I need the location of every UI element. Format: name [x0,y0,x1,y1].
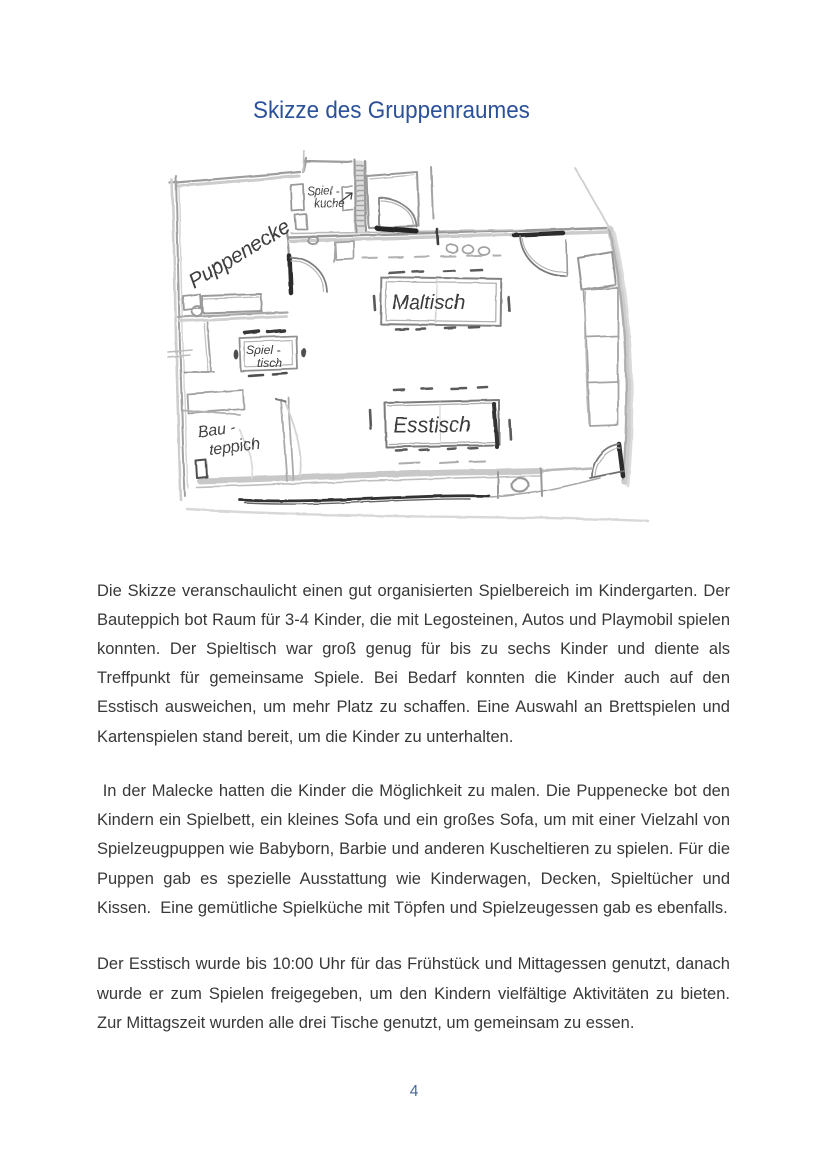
svg-text:Esstisch: Esstisch [393,414,471,437]
svg-text:Spiel -: Spiel - [307,186,340,198]
svg-text:teppich: teppich [208,436,261,459]
svg-text:Bau -: Bau - [197,420,237,442]
svg-text:Puppenecke: Puppenecke [185,215,294,293]
svg-text:kuche: kuche [314,198,345,210]
svg-text:Spiel -: Spiel - [246,343,281,357]
svg-text:tisch: tisch [257,356,282,370]
svg-text:Maltisch: Maltisch [392,292,465,314]
